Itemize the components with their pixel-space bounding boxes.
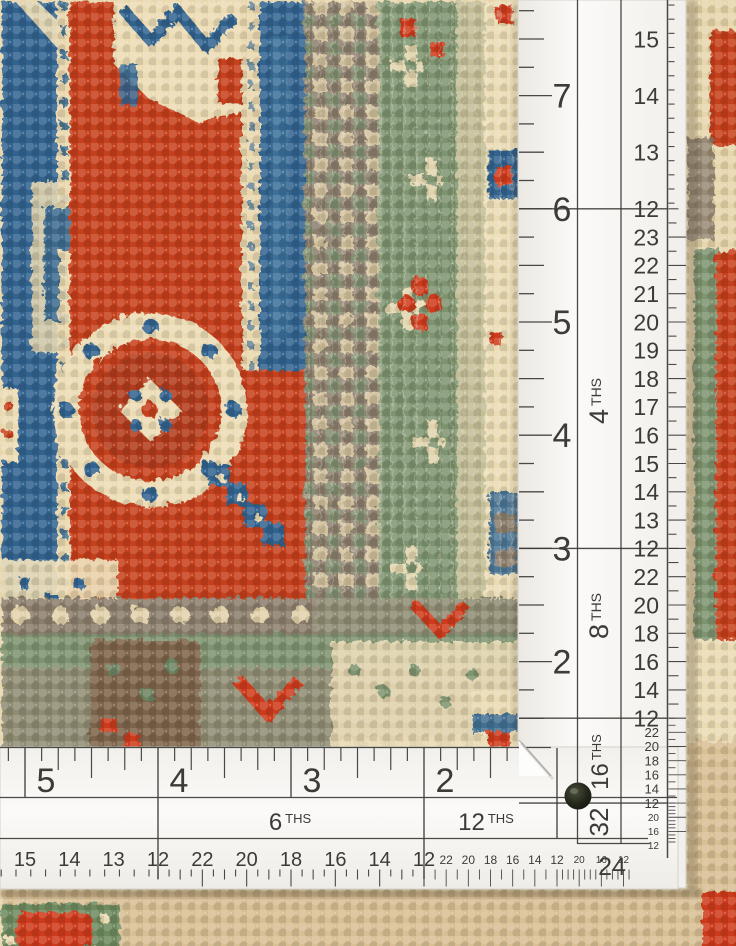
- scale-number: 20: [574, 855, 586, 866]
- inch-number: 4: [553, 417, 572, 455]
- scale-number: 16: [645, 767, 659, 782]
- inch-number: 3: [553, 530, 572, 568]
- ruler-hang-hole-highlight: [570, 788, 578, 794]
- inch-number: 7: [553, 78, 572, 116]
- scale-number: 16: [506, 853, 520, 867]
- scene: 7654321514131223222120191817161514131222…: [0, 0, 736, 946]
- inch-number: 5: [553, 304, 572, 342]
- scale-number: 16: [324, 849, 346, 871]
- scale-number: 16: [633, 422, 659, 448]
- scale-number: 15: [633, 26, 659, 52]
- scale-number: 20: [645, 739, 659, 754]
- scale-number: 20: [633, 592, 659, 618]
- ruler-shadow: [687, 0, 697, 888]
- scale-number: 12: [550, 853, 564, 867]
- scale-number: 14: [528, 853, 542, 867]
- scale-number: 14: [633, 479, 659, 505]
- scale-number: 14: [58, 849, 80, 871]
- scale-number: 12: [633, 536, 659, 562]
- scale-number: 13: [103, 849, 125, 871]
- scale-number: 16: [633, 649, 659, 675]
- scale-number: 23: [633, 224, 659, 250]
- scale-band-label: 24: [598, 853, 626, 881]
- scale-number: 15: [14, 849, 36, 871]
- scale-number: 22: [645, 725, 659, 740]
- scale-number: 12: [648, 841, 660, 852]
- inch-number: 6: [553, 191, 572, 229]
- scale-number: 14: [633, 83, 659, 109]
- scale-number: 14: [645, 782, 659, 797]
- scale-number: 18: [484, 853, 498, 867]
- scale-number: 18: [280, 849, 302, 871]
- inch-number: 2: [436, 762, 455, 800]
- scale-number: 12: [413, 849, 435, 871]
- scale-number: 13: [633, 507, 659, 533]
- scale-number: 15: [633, 451, 659, 477]
- scale-number: 18: [633, 366, 659, 392]
- scale-number: 14: [369, 849, 391, 871]
- inch-number: 5: [37, 762, 56, 800]
- scale-number: 22: [633, 253, 659, 279]
- scale-number: 20: [462, 853, 476, 867]
- photo-rug-with-l-square-ruler: 7654321514131223222120191817161514131222…: [0, 0, 736, 946]
- scale-number: 17: [633, 394, 659, 420]
- scale-number: 12: [633, 196, 659, 222]
- scale-number: 14: [633, 677, 659, 703]
- scale-number: 12: [147, 849, 169, 871]
- inch-number: 4: [170, 762, 189, 800]
- scale-number: 22: [633, 564, 659, 590]
- inch-number: 3: [303, 762, 322, 800]
- scale-number: 22: [439, 853, 453, 867]
- scale-number: 20: [633, 309, 659, 335]
- scale-band-label: 32: [584, 808, 614, 837]
- scale-number: 18: [633, 621, 659, 647]
- scale-number: 21: [633, 281, 659, 307]
- ruler-shadow: [511, 0, 518, 745]
- scale-number: 22: [191, 849, 213, 871]
- scale-number: 16: [648, 827, 660, 838]
- scale-number: 20: [236, 849, 258, 871]
- inch-number: 2: [553, 644, 572, 682]
- scale-number: 20: [648, 813, 660, 824]
- scale-number: 18: [645, 753, 659, 768]
- scale-number: 13: [633, 139, 659, 165]
- ruler-hang-hole: [565, 783, 592, 810]
- scale-number: 19: [633, 338, 659, 364]
